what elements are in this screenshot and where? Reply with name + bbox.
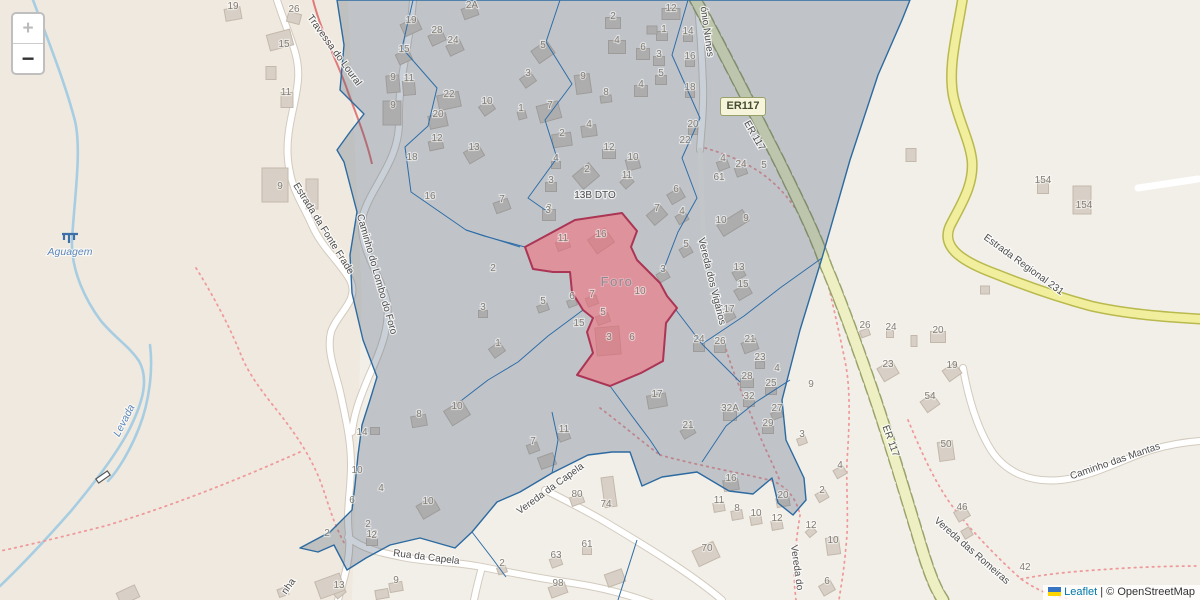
house-number: 4 bbox=[720, 153, 726, 164]
house-number: 5 bbox=[683, 239, 689, 250]
house-number: 4 bbox=[378, 483, 384, 494]
house-number: 1 bbox=[661, 24, 667, 35]
house-number: 32 bbox=[743, 391, 755, 402]
house-number: 12 bbox=[771, 513, 783, 524]
house-number: 14 bbox=[356, 427, 368, 438]
building bbox=[375, 588, 389, 599]
house-number: 10 bbox=[351, 465, 363, 476]
house-number: 1 bbox=[495, 338, 501, 349]
house-number: 2 bbox=[819, 485, 825, 496]
building bbox=[262, 168, 288, 202]
house-number: 28 bbox=[431, 25, 443, 36]
house-number: 8 bbox=[734, 503, 740, 514]
house-number: 5 bbox=[540, 40, 546, 51]
house-number: 11 bbox=[714, 495, 725, 506]
house-number: 10 bbox=[451, 401, 463, 412]
house-number: 18 bbox=[406, 152, 418, 163]
house-number: 11 bbox=[558, 233, 569, 244]
house-number: 2 bbox=[371, 530, 377, 541]
zoom-out-button[interactable]: − bbox=[13, 44, 43, 73]
house-number: 29 bbox=[762, 418, 774, 429]
house-number: 16 bbox=[725, 473, 737, 484]
house-number: 9 bbox=[808, 379, 814, 390]
house-number: 9 bbox=[580, 71, 586, 82]
house-number: 3 bbox=[480, 302, 486, 313]
house-number: 2 bbox=[499, 558, 505, 569]
house-number: 50 bbox=[940, 439, 952, 450]
trail bbox=[1021, 566, 1200, 579]
house-number: 54 bbox=[924, 391, 936, 402]
house-number: 5 bbox=[540, 296, 546, 307]
house-number: 28 bbox=[741, 371, 753, 382]
house-number: 7 bbox=[530, 436, 536, 447]
house-number: 10 bbox=[422, 496, 434, 507]
leaflet-link[interactable]: Leaflet bbox=[1064, 586, 1097, 598]
house-number: 12 bbox=[603, 142, 615, 153]
house-number: 13 bbox=[333, 580, 345, 591]
house-number: 6 bbox=[569, 291, 575, 302]
house-number: 27 bbox=[771, 403, 783, 414]
house-number: 11 bbox=[622, 170, 633, 181]
landuse-patch bbox=[0, 0, 362, 600]
house-number: 7 bbox=[499, 194, 505, 205]
house-number: 8 bbox=[603, 87, 609, 98]
house-number: 3 bbox=[525, 68, 531, 79]
house-number: 2 bbox=[610, 11, 616, 22]
er231-road bbox=[948, 0, 1200, 319]
road bbox=[474, 567, 482, 600]
house-number: 12 bbox=[805, 520, 817, 531]
building bbox=[981, 286, 990, 294]
house-number: 17 bbox=[651, 389, 663, 400]
house-number: 21 bbox=[744, 334, 756, 345]
house-number: 6 bbox=[349, 495, 355, 506]
house-number: 154 bbox=[1076, 200, 1093, 211]
house-number: 26 bbox=[288, 4, 300, 15]
house-number: 3 bbox=[545, 205, 551, 216]
house-number: 20 bbox=[932, 325, 944, 336]
house-number: 11 bbox=[281, 87, 292, 98]
house-number: 4 bbox=[774, 363, 780, 374]
house-number: 2 bbox=[490, 263, 496, 274]
house-number: 9 bbox=[390, 100, 396, 111]
house-number: 13 bbox=[468, 142, 480, 153]
house-number: 8 bbox=[416, 409, 422, 420]
attribution-bar: Leaflet | © OpenStreetMap bbox=[1043, 585, 1200, 600]
house-number: 20 bbox=[432, 109, 444, 120]
building bbox=[266, 67, 276, 80]
house-number: 7 bbox=[589, 289, 595, 300]
area-label-layer: Foro bbox=[601, 274, 634, 289]
house-number: 98 bbox=[552, 578, 564, 589]
house-number: 25 bbox=[765, 378, 777, 389]
house-number: 12 bbox=[665, 3, 677, 14]
house-number: 11 bbox=[559, 424, 570, 435]
house-number: 22 bbox=[443, 89, 455, 100]
landuse-layer bbox=[0, 0, 362, 600]
house-number: 26 bbox=[714, 336, 726, 347]
house-number: 4 bbox=[679, 206, 685, 217]
house-number: 6 bbox=[629, 332, 635, 343]
house-number: 3 bbox=[606, 332, 612, 343]
house-number: 4 bbox=[614, 35, 620, 46]
house-number: 4 bbox=[553, 153, 559, 164]
house-number: 2 bbox=[324, 528, 330, 539]
house-number: 10 bbox=[827, 535, 839, 546]
house-number: 2 bbox=[584, 164, 590, 175]
house-number: 22 bbox=[679, 135, 691, 146]
house-number: 9 bbox=[393, 575, 399, 586]
house-number: 3 bbox=[656, 49, 662, 60]
house-number: 46 bbox=[956, 502, 968, 513]
house-number: 5 bbox=[600, 307, 606, 318]
house-number: 19 bbox=[946, 360, 958, 371]
house-number: 10 bbox=[481, 96, 493, 107]
house-number: 4 bbox=[638, 79, 644, 90]
street-label: 13B DTO bbox=[574, 190, 616, 201]
house-number: 13 bbox=[733, 262, 745, 273]
house-number: 2A bbox=[466, 0, 479, 11]
house-number: 42 bbox=[1019, 562, 1031, 573]
house-number: 10 bbox=[627, 152, 639, 163]
street-label: Caminho das Mantas bbox=[1069, 441, 1162, 482]
house-number: 2 bbox=[559, 128, 565, 139]
osm-copyright: © OpenStreetMap bbox=[1106, 586, 1195, 598]
house-number: 24 bbox=[447, 35, 459, 46]
house-number: 154 bbox=[1035, 175, 1052, 186]
house-number: 9 bbox=[277, 181, 283, 192]
zoom-control: + − bbox=[11, 12, 45, 75]
house-number: 4 bbox=[837, 460, 843, 471]
house-number: 15 bbox=[278, 39, 290, 50]
house-number: 5 bbox=[658, 68, 664, 79]
house-number: 23 bbox=[882, 359, 894, 370]
house-number: 10 bbox=[750, 508, 762, 519]
house-number: 61 bbox=[713, 172, 725, 183]
house-number: 6 bbox=[824, 576, 830, 587]
house-number: 11 bbox=[404, 73, 415, 84]
house-number: 21 bbox=[682, 420, 694, 431]
house-number: 9 bbox=[743, 213, 749, 224]
house-number: 9 bbox=[390, 72, 396, 83]
ukraine-flag-icon bbox=[1048, 587, 1061, 596]
house-number: 4 bbox=[586, 119, 592, 130]
house-number: 14 bbox=[682, 26, 694, 37]
house-number: 6 bbox=[673, 184, 679, 195]
house-number: 15 bbox=[573, 318, 585, 329]
zoom-in-button[interactable]: + bbox=[13, 14, 43, 44]
house-number: 10 bbox=[715, 215, 727, 226]
house-number: 3 bbox=[660, 264, 666, 275]
house-number: 15 bbox=[398, 44, 410, 55]
house-number: 16 bbox=[684, 51, 696, 62]
house-number: 3 bbox=[799, 429, 805, 440]
route-badge-er117: ER117 bbox=[720, 97, 766, 116]
area-label-foro: Foro bbox=[601, 274, 634, 289]
water-label: Aguagem bbox=[47, 246, 93, 258]
house-number: 10 bbox=[634, 286, 646, 297]
building bbox=[911, 336, 917, 347]
map-canvas[interactable]: 192615119192824159119222012131018162A531… bbox=[0, 0, 1200, 600]
house-number: 24 bbox=[885, 322, 897, 333]
street-label: Vereda do bbox=[788, 544, 805, 591]
house-number: 19 bbox=[227, 1, 239, 12]
house-number: 32A bbox=[721, 403, 739, 414]
house-number: 7 bbox=[654, 203, 660, 214]
house-number: 18 bbox=[684, 82, 696, 93]
house-number: 16 bbox=[595, 229, 607, 240]
street-label: Vereda das Romeiras bbox=[932, 515, 1012, 586]
road bbox=[963, 368, 1200, 481]
house-number: 19 bbox=[405, 15, 417, 26]
house-number: 24 bbox=[735, 159, 747, 170]
house-number: 3 bbox=[548, 175, 554, 186]
house-number: 61 bbox=[581, 539, 593, 550]
attribution-separator: | bbox=[1100, 586, 1103, 598]
house-number: 1 bbox=[518, 103, 524, 114]
house-number: 74 bbox=[600, 499, 612, 510]
house-number: 26 bbox=[859, 320, 871, 331]
house-number: 7 bbox=[547, 100, 553, 111]
house-number: 6 bbox=[640, 42, 646, 53]
house-number: 24 bbox=[693, 334, 705, 345]
house-number: 12 bbox=[431, 133, 443, 144]
house-number: 20 bbox=[687, 119, 699, 130]
house-number: 23 bbox=[754, 352, 766, 363]
house-number: 16 bbox=[424, 191, 436, 202]
house-number: 70 bbox=[701, 543, 713, 554]
house-number: 63 bbox=[550, 550, 562, 561]
house-number: 5 bbox=[761, 160, 767, 171]
building bbox=[906, 149, 916, 162]
house-number: 20 bbox=[777, 490, 789, 501]
house-number: 80 bbox=[571, 489, 583, 500]
house-number: 15 bbox=[737, 279, 749, 290]
road-stub bbox=[1138, 179, 1198, 188]
map-svg: 192615119192824159119222012131018162A531… bbox=[0, 0, 1200, 600]
